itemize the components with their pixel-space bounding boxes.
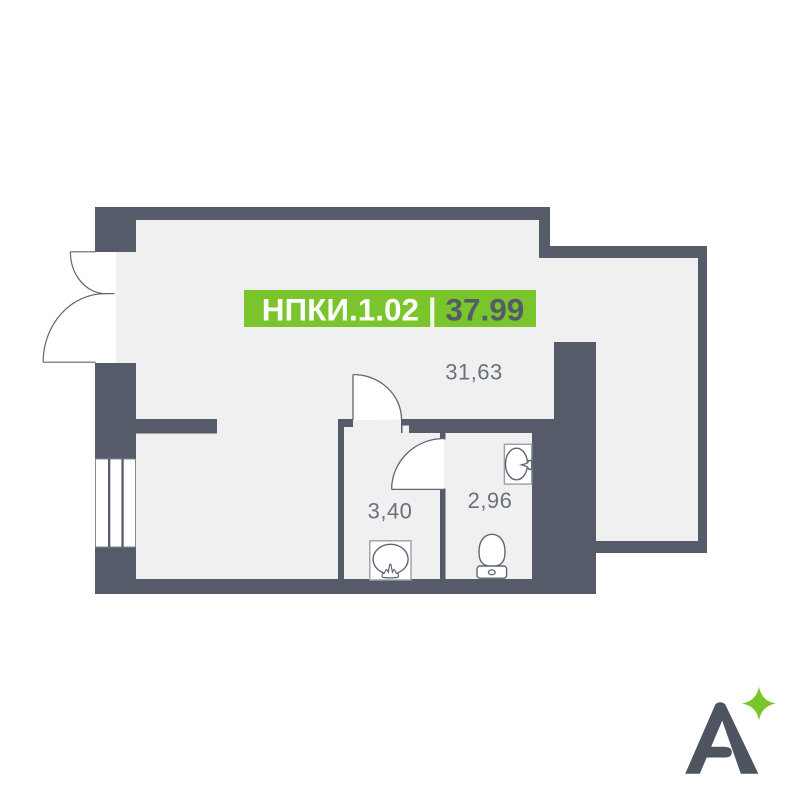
svg-text:2,96: 2,96: [468, 488, 513, 513]
svg-text:НПКИ.1.02 | 37.99: НПКИ.1.02 | 37.99: [262, 292, 525, 328]
svg-text:3,40: 3,40: [368, 499, 413, 524]
svg-text:31,63: 31,63: [445, 360, 503, 385]
